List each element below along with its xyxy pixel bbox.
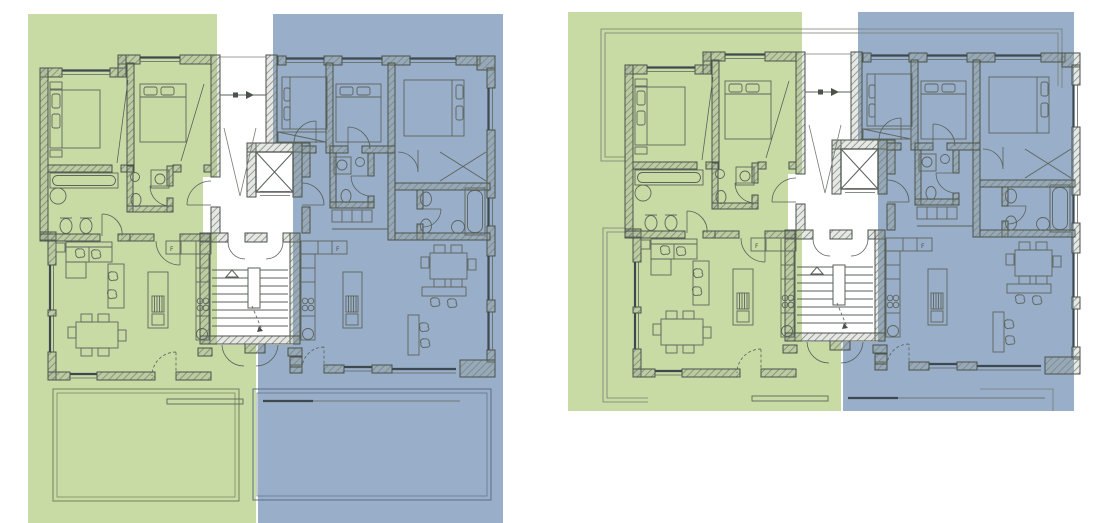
floor-plans-image: F F: [0, 0, 1101, 523]
floor-plan-page: F F: [0, 0, 1101, 523]
figure-ground-floor: [28, 14, 503, 523]
figure-upper-floor: [568, 12, 1080, 411]
